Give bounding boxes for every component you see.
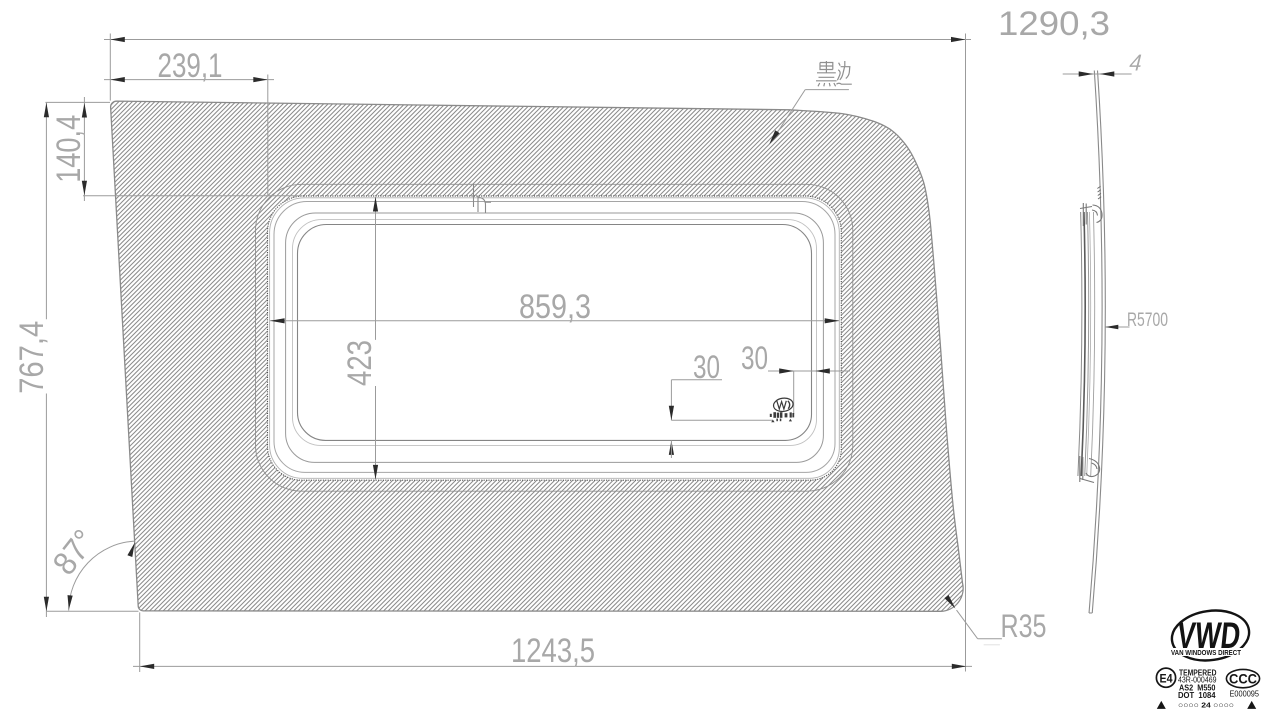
svg-text:DOT 1084: DOT 1084 [1178, 690, 1216, 700]
svg-text:E4: E4 [1160, 671, 1173, 685]
svg-text:140,4: 140,4 [50, 115, 88, 183]
svg-text:E000095: E000095 [1230, 689, 1260, 699]
svg-text:859,3: 859,3 [519, 288, 591, 326]
svg-text:30: 30 [693, 349, 720, 385]
svg-text:239,1: 239,1 [158, 47, 223, 85]
svg-text:1290,3: 1290,3 [998, 5, 1110, 43]
svg-text:R35: R35 [1001, 608, 1047, 644]
svg-text:1243,5: 1243,5 [511, 632, 595, 670]
svg-text:VAN WINDOWS DIRECT: VAN WINDOWS DIRECT [1171, 648, 1242, 657]
svg-text:R5700: R5700 [1127, 310, 1168, 331]
svg-text:767,4: 767,4 [13, 321, 51, 394]
svg-text:○○○○ 24 ○○○○: ○○○○ 24 ○○○○ [1178, 700, 1234, 709]
svg-text:423: 423 [341, 340, 379, 386]
svg-text:CCC: CCC [1229, 672, 1257, 687]
svg-text:30: 30 [741, 340, 768, 376]
